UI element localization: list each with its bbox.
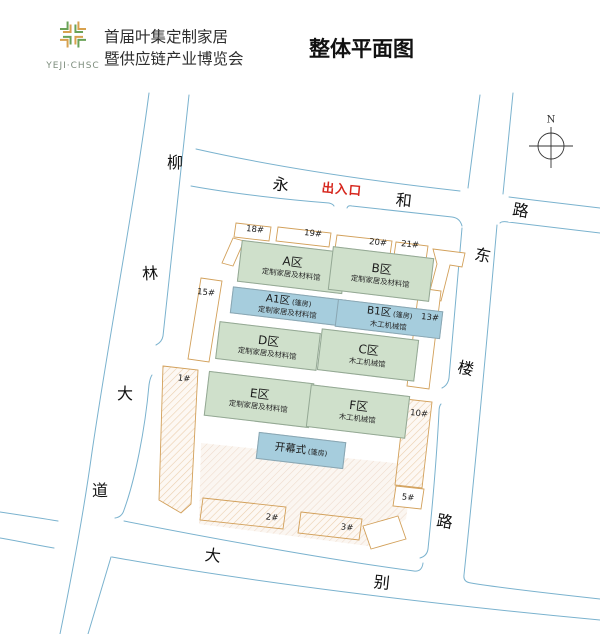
road-label-yong: 永 <box>272 170 290 196</box>
road-label-liu: 柳 <box>167 149 183 173</box>
building-label-10: 10# <box>410 408 429 420</box>
building-label-20: 20# <box>369 237 388 249</box>
main-entrance-gate-icon <box>335 196 346 212</box>
site-plan-page: A区 定制家居及材料馆 B区 定制家居及材料馆 A1区(篷房) 定制家居及材料馆… <box>0 0 600 634</box>
building-label-15: 15# <box>197 287 216 299</box>
road-label-bie: 别 <box>373 568 391 594</box>
road-label-lin: 林 <box>141 259 159 284</box>
road-label-he: 和 <box>395 186 413 212</box>
page-title: 整体平面图 <box>309 33 414 63</box>
building-label-18: 18# <box>246 224 265 236</box>
road-label-da-left: 大 <box>117 380 133 404</box>
expo-title-line1: 首届叶集定制家居 <box>104 26 244 48</box>
entrance-label: 出入口 <box>321 177 363 199</box>
building-label-5: 5# <box>401 492 415 503</box>
building-label-2: 2# <box>265 512 279 523</box>
compass-north-label: N <box>547 115 556 126</box>
hall-gate-icons <box>231 266 405 442</box>
expo-title: 首届叶集定制家居 暨供应链产业博览会 <box>104 26 244 70</box>
building-label-13: 13# <box>421 312 440 324</box>
road-label-da-bottom: 大 <box>204 541 222 567</box>
gates-layer <box>0 0 600 634</box>
expo-logo-icon <box>46 13 100 59</box>
logo-text: YEJI·CHSC <box>46 61 99 71</box>
road-label-dao: 道 <box>92 477 108 501</box>
building-label-19: 19# <box>304 228 323 240</box>
building-label-3: 3# <box>340 522 354 533</box>
building-label-1: 1# <box>177 373 191 384</box>
expo-title-line2: 暨供应链产业博览会 <box>104 48 244 70</box>
building-label-21: 21# <box>401 239 420 251</box>
